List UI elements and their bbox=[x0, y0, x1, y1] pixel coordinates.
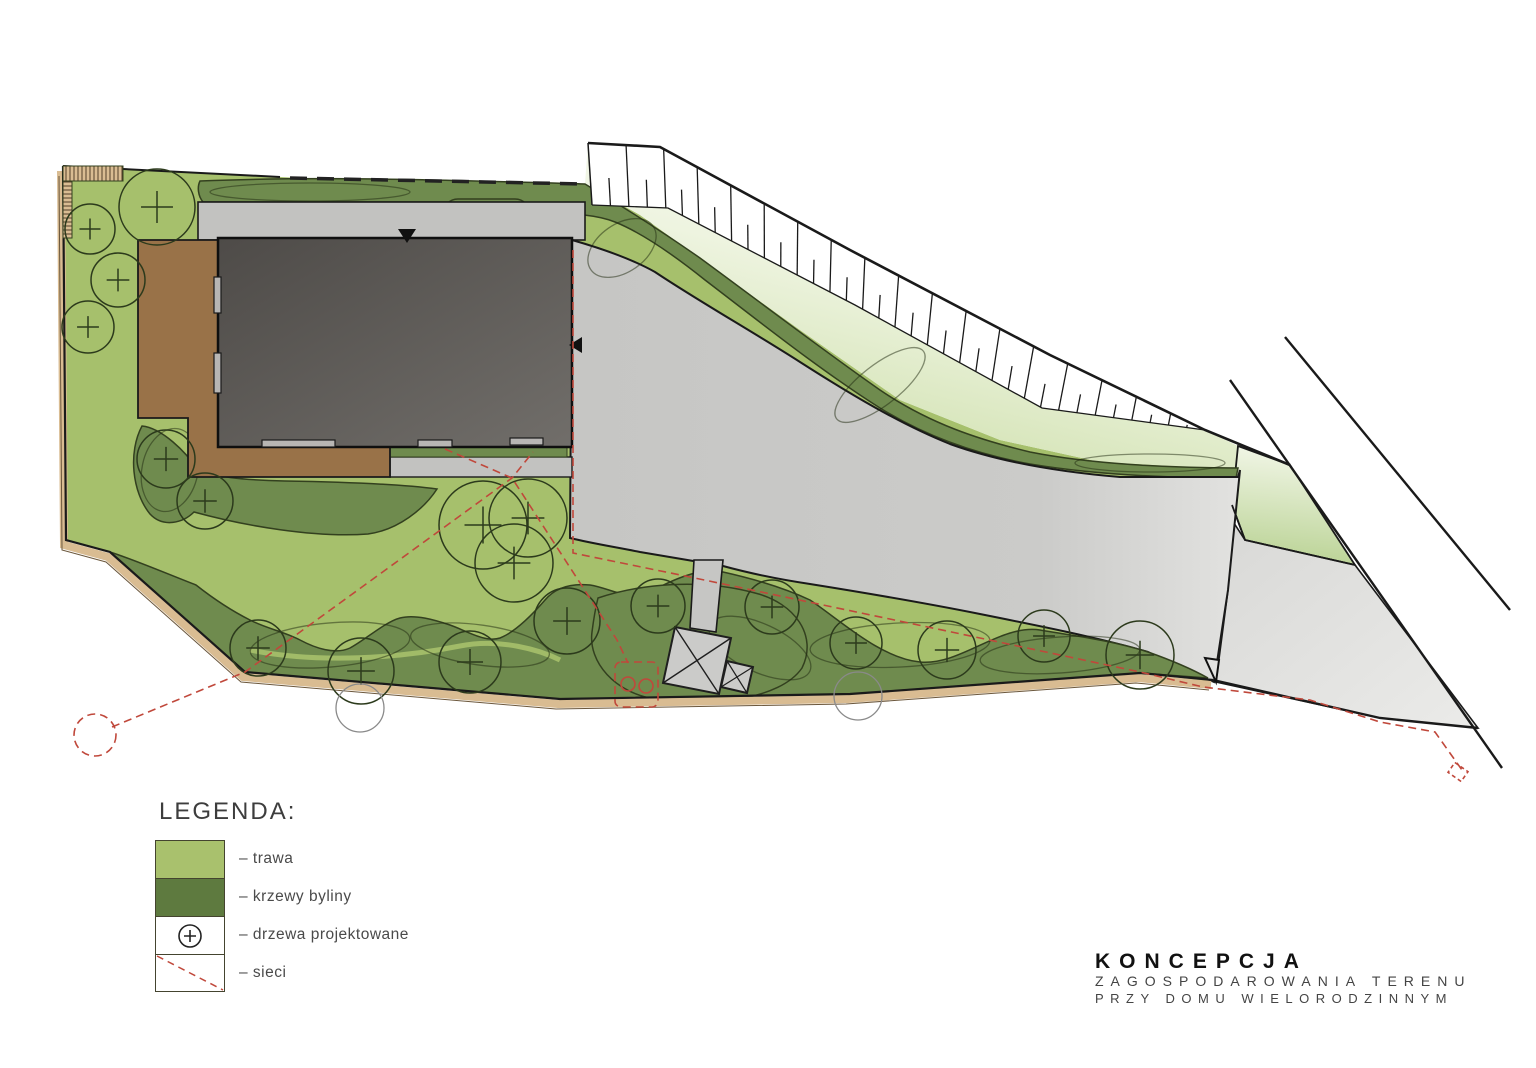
dashed-line-icon bbox=[156, 955, 224, 991]
existing-tree-symbol bbox=[336, 684, 384, 732]
plan-title: KONCEPCJA bbox=[1095, 950, 1471, 973]
legend-item-label: – krzewy byliny bbox=[239, 888, 352, 906]
strip-below-building bbox=[390, 457, 572, 477]
utility-manhole-circle bbox=[74, 714, 116, 756]
legend-item-utilities: – sieci bbox=[155, 954, 409, 992]
fence-hatch-top bbox=[63, 166, 123, 181]
gazebo-small bbox=[721, 661, 753, 693]
plan-subtitle-2: PRZY DOMU WIELORODZINNYM bbox=[1095, 991, 1471, 1007]
legend-item-label: – drzewa projektowane bbox=[239, 926, 409, 944]
legend-item-grass: – trawa bbox=[155, 840, 409, 878]
title-block: KONCEPCJA ZAGOSPODAROWANIA TERENU PRZY D… bbox=[1095, 950, 1471, 1006]
building-roof bbox=[218, 238, 572, 447]
legend-heading: LEGENDA: bbox=[159, 798, 409, 826]
legend-item-trees: – drzewa projektowane bbox=[155, 916, 409, 954]
tree-icon bbox=[175, 921, 205, 951]
shrubs-swatch bbox=[155, 878, 225, 916]
grass-swatch bbox=[155, 840, 225, 878]
plan-subtitle-1: ZAGOSPODAROWANIA TERENU bbox=[1095, 973, 1471, 991]
legend-item-label: – trawa bbox=[239, 850, 293, 868]
site-plan-page: LEGENDA: – trawa – krzewy byliny – drzew… bbox=[0, 0, 1536, 1068]
driveway bbox=[198, 202, 585, 240]
utilities-swatch bbox=[155, 954, 225, 992]
tree-symbol-swatch bbox=[155, 916, 225, 954]
legend-item-label: – sieci bbox=[239, 964, 286, 982]
legend-item-shrubs: – krzewy byliny bbox=[155, 878, 409, 916]
hedge-strip-below-building bbox=[390, 447, 567, 457]
legend: LEGENDA: – trawa – krzewy byliny – drzew… bbox=[155, 798, 409, 992]
